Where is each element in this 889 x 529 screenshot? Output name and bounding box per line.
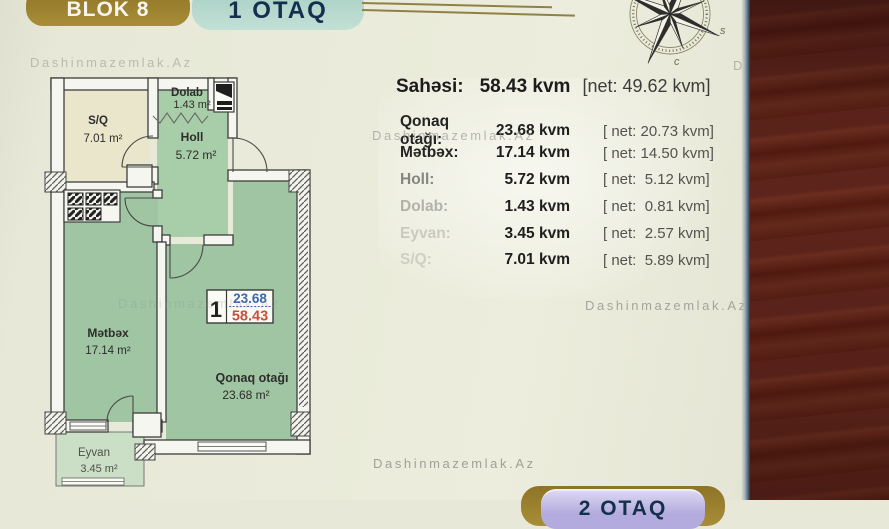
- label-qonaq-area: 23.68 m²: [222, 388, 269, 402]
- row-value: 7.01 kvm: [495, 251, 570, 269]
- label-holl: Holl: [181, 130, 204, 144]
- row-label: Mətbəx:: [400, 144, 495, 162]
- row-net: [ net: 5.89 kvm]: [603, 252, 714, 269]
- watermark: Dashinmazemlak.Az: [118, 296, 281, 311]
- block-badge: BLOK 8: [26, 0, 190, 26]
- row-label: Dolab:: [400, 198, 495, 216]
- wood-desk-background: [750, 0, 889, 500]
- label-dolab-area: 1.43 m²: [173, 99, 211, 111]
- row-value: 1.43 kvm: [495, 198, 570, 216]
- photo-of-floor-plan-sheet: { "watermark_text": "Dashinmazemlak.Az",…: [0, 0, 889, 500]
- block-badge-label: BLOK 8: [66, 0, 149, 26]
- summary-label: Sahəsi:: [396, 76, 464, 98]
- label-metbex-area: 17.14 m²: [85, 345, 131, 357]
- vent-shaft: [64, 190, 120, 222]
- table-row: Holl: 5.72 kvm [ net: 5.12 kvm]: [400, 167, 714, 194]
- row-net: [ net: 2.57 kvm]: [603, 225, 714, 242]
- label-eyvan: Eyvan: [78, 447, 110, 459]
- row-net: [ net: 14.50 kvm]: [603, 145, 714, 162]
- unit-type-badge-label: 1 OTAQ: [228, 0, 328, 30]
- compass-label-c: c: [674, 56, 680, 68]
- compass-star: [612, 0, 730, 70]
- next-unit-badge-label: 2 OTAQ: [579, 497, 668, 529]
- next-unit-badge: 2 OTAQ: [541, 489, 705, 529]
- watermark: Dashinmazemlak.Az: [585, 298, 748, 313]
- paper-edge: [741, 0, 750, 500]
- label-metbex: Mətbəx: [87, 326, 129, 340]
- row-label: S/Q:: [400, 251, 495, 269]
- unit-type-badge: 1 OTAQ: [192, 0, 364, 30]
- label-eyvan-area: 3.45 m²: [80, 463, 118, 475]
- table-row: Dolab: 1.43 kvm [ net: 0.81 kvm]: [400, 193, 714, 220]
- area-summary: Sahəsi: 58.43 kvm [net: 49.62 kvm]: [396, 76, 711, 98]
- table-row: Eyvan: 3.45 kvm [ net: 2.57 kvm]: [400, 220, 714, 247]
- compass-rose: s c: [612, 0, 730, 70]
- table-row: S/Q: 7.01 kvm [ net: 5.89 kvm]: [400, 247, 714, 274]
- summary-net: [net: 49.62 kvm]: [582, 76, 710, 97]
- row-value: 17.14 kvm: [495, 144, 570, 162]
- label-holl-area: 5.72 m²: [176, 148, 217, 162]
- row-net: [ net: 5.12 kvm]: [603, 171, 714, 188]
- table-row: Mətbəx: 17.14 kvm [ net: 14.50 kvm]: [400, 140, 714, 167]
- floor-plan: 1 23.68 58.43 S/Q 7.01 m² Dolab 1.43 m² …: [40, 70, 320, 495]
- entrance-door-icon: [214, 82, 234, 112]
- watermark: Dashinmazemlak.Az: [373, 456, 536, 471]
- row-net: [ net: 20.73 kvm]: [603, 123, 714, 140]
- label-dolab: Dolab: [171, 87, 203, 99]
- row-label: Holl:: [400, 171, 495, 189]
- label-qonaq: Qonaq otağı: [216, 371, 289, 385]
- row-value: 5.72 kvm: [495, 171, 570, 189]
- watermark: Dashinmazemlak.Az: [372, 128, 535, 143]
- row-net: [ net: 0.81 kvm]: [603, 198, 714, 215]
- row-value: 3.45 kvm: [495, 225, 570, 243]
- row-label: Eyvan:: [400, 225, 495, 243]
- summary-value: 58.43 kvm: [480, 76, 571, 98]
- watermark: Dashinmazemlak.Az: [30, 55, 193, 70]
- label-sq: S/Q: [88, 115, 108, 127]
- label-sq-area: 7.01 m²: [84, 133, 123, 145]
- compass-label-s: s: [720, 25, 726, 37]
